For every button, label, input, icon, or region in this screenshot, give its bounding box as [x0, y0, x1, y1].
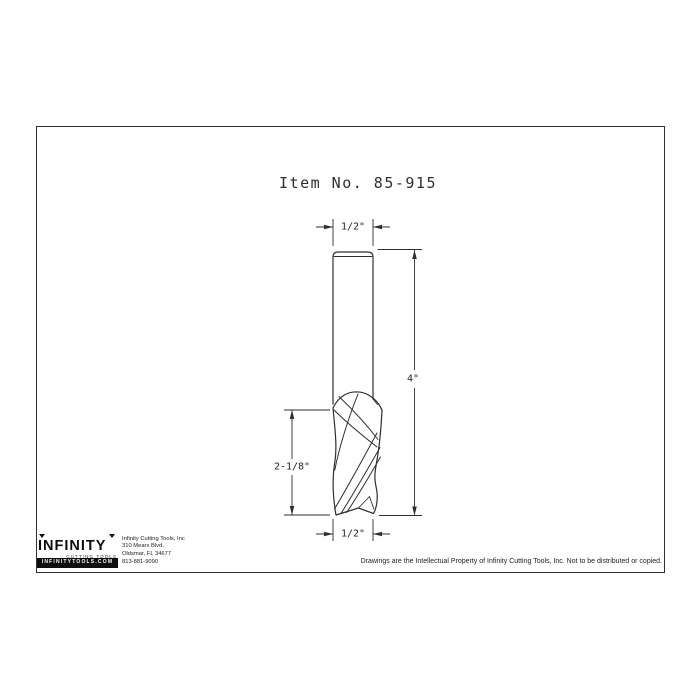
company-name: Infinity Cutting Tools, Inc [122, 536, 185, 544]
dim-label-flute-length: 2-1/8" [273, 462, 311, 473]
flute-left-edge [333, 408, 336, 515]
tool-outline [333, 252, 382, 515]
address-line-2: Oldsmar, FL 34677 [122, 551, 185, 559]
spiral-line [335, 394, 358, 470]
dimension-arrowheads [290, 225, 417, 537]
spiral-line [341, 448, 380, 514]
copyright-notice: Drawings are the Intellectual Property o… [330, 558, 662, 565]
dim-label-cut-diameter: 1/2" [340, 529, 366, 540]
spiral-line [334, 410, 377, 447]
dim-label-overall-length: 4" [406, 374, 420, 385]
dimension-lines [292, 227, 415, 534]
drawing-page: Item No. 85-915 [0, 0, 700, 700]
spiral-flutes [334, 394, 381, 514]
dim-label-shank-diameter: 1/2" [340, 222, 366, 233]
phone-number: 813-881-9090 [122, 559, 185, 567]
company-address-block: Infinity Cutting Tools, Inc 310 Mears Bl… [122, 536, 185, 568]
infinity-logo: INFINITY [38, 538, 118, 554]
logo-website-bar: INFINITYTOOLS.COM [37, 558, 118, 568]
flute-bottom-edge [336, 508, 374, 515]
end-gash-lines [359, 497, 374, 510]
extension-lines [284, 219, 422, 541]
spiral-line [339, 397, 378, 440]
address-line-1: 310 Mears Blvd. [122, 543, 185, 551]
end-mill-drawing [0, 0, 700, 700]
shank-outline [333, 252, 373, 404]
